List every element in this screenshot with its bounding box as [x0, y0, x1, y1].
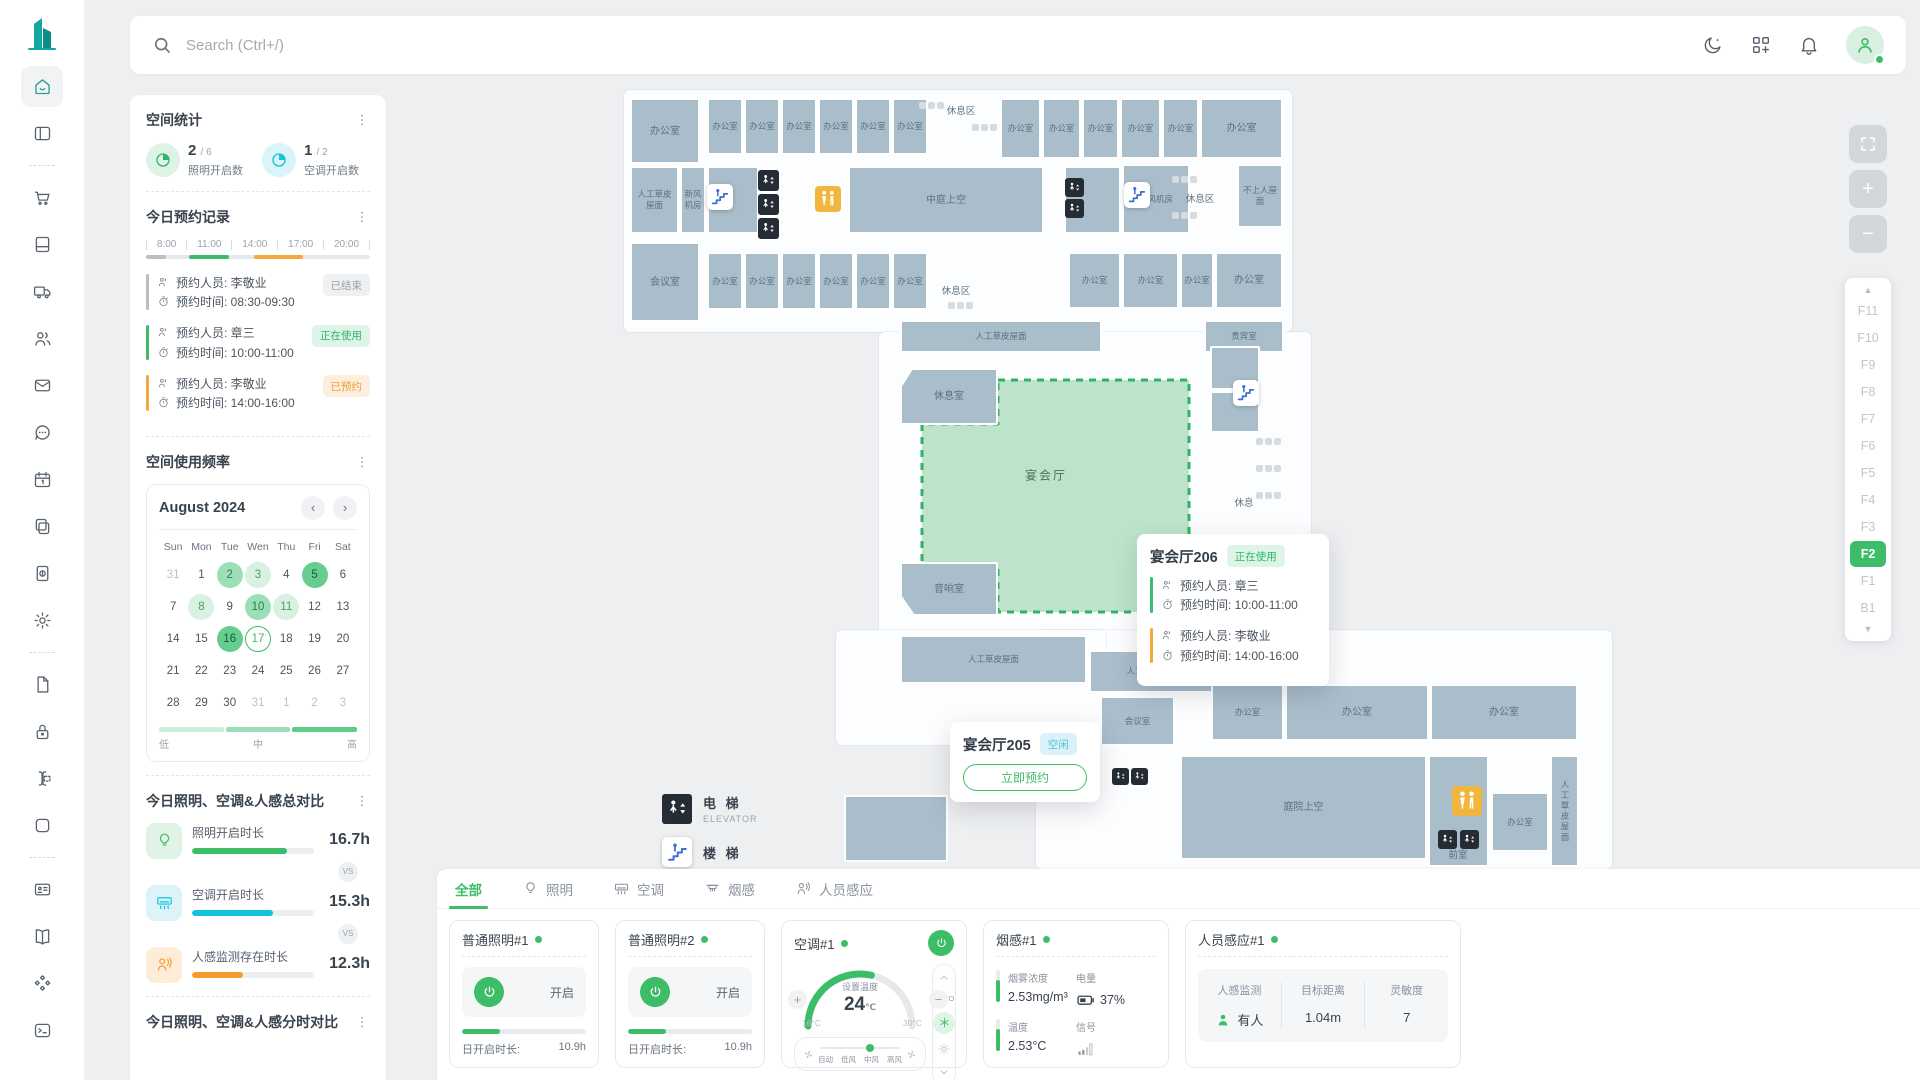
sidebar-item-chat[interactable] [21, 412, 63, 453]
online-status-dot [1874, 54, 1885, 65]
signal-icon [1076, 1039, 1096, 1059]
metric-value: 2.53°C [1008, 1039, 1046, 1053]
room-办公室[interactable]: 办公室 [1082, 98, 1119, 159]
time-text: 预约时间: 14:00-16:00 [1180, 647, 1299, 664]
dark-mode-icon[interactable] [1702, 34, 1724, 56]
elevator-icon [1112, 768, 1129, 785]
calendar-day[interactable]: 29 [187, 689, 215, 718]
legend-low: 低 [159, 736, 169, 751]
chat-icon [32, 422, 53, 443]
fan-speed-slider[interactable]: 自动低风中风高风 [794, 1037, 926, 1071]
room-办公室[interactable]: 办公室 [781, 98, 817, 155]
tooltip-room-name: 宴会厅205 [963, 734, 1031, 755]
metric-value: 2.53mg/m³ [1008, 990, 1068, 1004]
ac-icon [146, 885, 182, 921]
compare-value: 12.3h [324, 947, 370, 973]
tab-label: 照明 [546, 879, 573, 899]
calendar-day[interactable]: 2 [216, 561, 244, 590]
floor-button-F7[interactable]: F7 [1850, 406, 1886, 432]
chevron-down-icon[interactable] [937, 1065, 951, 1079]
tab-label: 全部 [455, 879, 482, 899]
room-办公室[interactable]: 办公室 [781, 252, 817, 310]
room-庭院上空[interactable]: 庭院上空 [1180, 755, 1427, 860]
room-办公室[interactable]: 办公室 [1122, 252, 1179, 309]
furn-icon [1256, 492, 1281, 499]
person-icon [157, 326, 170, 339]
search-icon [152, 35, 172, 55]
tab-label: 烟感 [728, 879, 755, 899]
device-title: 普通照明#1 [462, 930, 528, 949]
section-hourly-compare: 今日照明、空调&人感分时对比 [146, 997, 370, 1045]
room-办公室[interactable]: 办公室 [630, 98, 700, 164]
sidebar-item-receipt[interactable] [21, 553, 63, 594]
metric-label: 灵敏度 [1365, 982, 1448, 998]
ac-mode-selector: AUTO [932, 964, 956, 1080]
room-人工草皮屋面[interactable]: 人工草皮屋面 [1550, 755, 1579, 867]
calendar-day[interactable]: 23 [216, 657, 244, 686]
furn-icon [1256, 438, 1281, 445]
tab-label: 空调 [637, 879, 664, 899]
duration-bar [462, 1029, 586, 1034]
duration-bar [628, 1029, 752, 1034]
zoom-out-button[interactable]: − [1849, 215, 1887, 253]
search-input[interactable] [186, 37, 606, 54]
weekday-label: Sun [159, 538, 187, 558]
calendar-day[interactable]: 11 [272, 593, 300, 622]
stat-label: 空调开启数 [304, 162, 359, 178]
calendar-day[interactable]: 28 [159, 689, 187, 718]
room-会议室[interactable]: 会议室 [1100, 696, 1175, 746]
stat-value: 2 / 6 [188, 142, 212, 159]
room-办公室[interactable]: 办公室 [1000, 98, 1041, 159]
weekday-label: Wen [244, 538, 272, 558]
duration-label: 日开启时长: [462, 1041, 520, 1057]
map-label: 休息区 [947, 103, 976, 117]
ac-icon [613, 880, 630, 897]
reservation-record: 预约人员: 李敬业 预约时间: 08:30-09:30 已结束 [146, 271, 370, 313]
battery-icon [1076, 990, 1096, 1010]
calendar-day[interactable]: 18 [272, 625, 300, 654]
room-办公室[interactable]: 办公室 [1491, 792, 1549, 852]
room-办公室[interactable]: 办公室 [855, 98, 891, 155]
compare-row: 空调开启时长 15.3h [146, 885, 370, 921]
level-gauge [996, 970, 1000, 1002]
room-办公室[interactable]: 办公室 [1430, 684, 1578, 741]
calendar-day[interactable]: 3 [329, 689, 357, 718]
calendar-day[interactable]: 20 [329, 625, 357, 654]
floor-button-F5[interactable]: F5 [1850, 460, 1886, 486]
calendar-day[interactable]: 21 [159, 657, 187, 686]
legend-zh: 电 梯 [703, 793, 758, 812]
sidebar-item-mail[interactable] [21, 365, 63, 406]
room-中庭上空[interactable]: 中庭上空 [848, 166, 1044, 234]
duration-label: 日开启时长: [628, 1041, 686, 1057]
temp-max: 30°C [903, 1018, 922, 1028]
reservation-record: 预约人员: 章三 预约时间: 10:00-11:00 正在使用 [146, 322, 370, 364]
tab-label: 人员感应 [819, 879, 873, 899]
calendar-day[interactable]: 13 [329, 593, 357, 622]
room-办公室[interactable]: 办公室 [707, 252, 743, 310]
fullscreen-button[interactable] [1849, 125, 1887, 163]
room-办公室[interactable]: 办公室 [1211, 684, 1284, 741]
layout-icon [32, 123, 53, 144]
calendar-day[interactable]: 9 [216, 593, 244, 622]
device-card-ac: 空调#1 + − 16°C 30°C [781, 920, 967, 1068]
cool-mode-icon[interactable] [933, 1012, 955, 1034]
section-daily-compare: 今日照明、空调&人感总对比 照明开启时长 16.7hVS 空调开启时长 15.3… [146, 776, 370, 997]
room-人工草皮屋面[interactable]: 人工草皮屋面 [630, 166, 679, 234]
left-info-panel: 空间统计 2 / 6 照明开启数 1 / 2 空调开启数 今日预约记录 8:00… [130, 95, 386, 1080]
presence-icon [146, 947, 182, 983]
floor-button-F9[interactable]: F9 [1850, 352, 1886, 378]
device-title: 普通照明#2 [628, 930, 694, 949]
elevator-icon [758, 218, 779, 239]
reservation-record: 预约人员: 李敬业 预约时间: 14:00-16:00 已预约 [146, 372, 370, 414]
device-title: 烟感#1 [996, 930, 1036, 949]
fan-slider-handle[interactable] [866, 1044, 874, 1052]
timeline-tick: 20:00 [334, 239, 359, 250]
weekday-label: Sat [329, 538, 357, 558]
room[interactable] [844, 795, 948, 862]
heat-mode-icon[interactable] [937, 1042, 951, 1056]
person-icon [1161, 579, 1174, 592]
usage-calendar: August 2024 ‹ › SunMonTueWenThuFriSat311… [146, 484, 370, 762]
device-card-light-1: 普通照明#1 开启 日开启时长: 10.9h [449, 920, 599, 1068]
fan-speed-label[interactable]: 低风 [841, 1054, 856, 1065]
time-text: 预约时间: 08:30-09:30 [176, 293, 295, 310]
floor-button-F6[interactable]: F6 [1850, 433, 1886, 459]
metric-value: 有人 [1237, 1010, 1263, 1029]
elevator-icon [1131, 768, 1148, 785]
floor-button-F8[interactable]: F8 [1850, 379, 1886, 405]
floor-button-F10[interactable]: F10 [1850, 325, 1886, 351]
legend-item: 电 梯ELEVATOR [662, 793, 758, 824]
calendar-day[interactable]: 5 [300, 561, 328, 590]
zoom-in-button[interactable]: + [1849, 170, 1887, 208]
fan-speed-label[interactable]: 高风 [887, 1054, 902, 1065]
calendar-day[interactable]: 15 [187, 625, 215, 654]
reservation-timeline-track [146, 255, 370, 259]
room-人工草皮屋面[interactable]: 人工草皮屋面 [900, 635, 1087, 684]
icon-sidebar [0, 0, 84, 1080]
sidebar-item-truck[interactable] [21, 271, 63, 312]
clock-pie-icon [262, 143, 296, 177]
truck-icon [32, 281, 53, 302]
tab-烟感[interactable]: 烟感 [704, 869, 755, 908]
metric-label: 人感监测 [1198, 982, 1281, 998]
room-tooltip-205: 宴会厅205 空闲 立即预约 [950, 722, 1100, 802]
furn-icon [1172, 176, 1197, 183]
top-search-bar [130, 16, 1906, 74]
section-space-stats: 空间统计 2 / 6 照明开启数 1 / 2 空调开启数 [146, 95, 370, 192]
sidebar-item-lock[interactable] [21, 711, 63, 752]
ac-power-button[interactable] [928, 930, 954, 956]
calendar-day[interactable]: 25 [272, 657, 300, 686]
cart-icon [32, 187, 53, 208]
sidebar-item-shapes[interactable] [21, 963, 63, 1004]
room-办公室[interactable]: 办公室 [855, 252, 891, 310]
avatar[interactable] [1846, 26, 1884, 64]
calendar-day[interactable]: 12 [300, 593, 328, 622]
floor-selector: ▲F11F10F9F8F7F6F5F4F3F2F1B1▼ [1845, 278, 1891, 641]
temperature-gauge: + − 16°C 30°C 设置温度 24℃ [794, 964, 926, 1030]
metric-label: 信号 [1076, 1019, 1096, 1034]
metric-value: 7 [1365, 1010, 1448, 1025]
calendar-day[interactable]: 27 [329, 657, 357, 686]
calendar-day[interactable]: 1 [272, 689, 300, 718]
power-state: 开启 [716, 984, 740, 1001]
kebab-menu-icon[interactable] [354, 209, 370, 225]
tab-人员感应[interactable]: 人员感应 [795, 869, 873, 908]
elevator-icon [1460, 830, 1479, 849]
elevator-icon [662, 794, 692, 824]
kebab-menu-icon[interactable] [354, 112, 370, 128]
calendar-day[interactable]: 31 [244, 689, 272, 718]
person-text: 预约人员: 章三 [176, 324, 255, 341]
book-icon [32, 234, 53, 255]
compare-value: 16.7h [324, 823, 370, 849]
power-button[interactable] [474, 977, 504, 1007]
calendar-month: August 2024 [159, 500, 245, 516]
sidebar-item-file[interactable] [21, 664, 63, 705]
smoke-icon [704, 880, 721, 897]
tab-空调[interactable]: 空调 [613, 869, 664, 908]
device-title: 人员感应#1 [1198, 930, 1264, 949]
stat-item: 2 / 6 照明开启数 [146, 142, 254, 178]
calendar-day[interactable]: 4 [272, 561, 300, 590]
clock-icon [1161, 598, 1174, 611]
calendar-icon [32, 469, 53, 490]
floor-button-B1[interactable]: B1 [1850, 595, 1886, 621]
apps-grid-icon[interactable] [1750, 34, 1772, 56]
device-card-light-2: 普通照明#2 开启 日开启时长: 10.9h [615, 920, 765, 1068]
timeline-tick: 14:00 [242, 239, 267, 250]
calendar-day[interactable]: 2 [300, 689, 328, 718]
room-办公室[interactable]: 办公室 [1285, 684, 1429, 741]
clock-icon [1161, 649, 1174, 662]
room-办公室[interactable]: 办公室 [744, 252, 780, 310]
chevron-up-icon[interactable] [937, 971, 951, 985]
sidebar-item-cart[interactable] [21, 177, 63, 218]
floor-button-F4[interactable]: F4 [1850, 487, 1886, 513]
map-legend: 电 梯ELEVATOR 楼 梯 [662, 793, 758, 880]
room-办公室[interactable]: 办公室 [1042, 98, 1081, 159]
vs-badge: VS [338, 862, 358, 882]
temp-value: 24 [844, 994, 865, 1015]
room-人工草皮屋面[interactable]: 人工草皮屋面 [900, 320, 1102, 353]
kebab-menu-icon[interactable] [354, 1014, 370, 1030]
sidebar-item-home[interactable] [21, 66, 63, 107]
sidebar-divider [29, 857, 55, 858]
cursor-icon [32, 768, 53, 789]
copy-icon [32, 516, 53, 537]
status-badge: 正在使用 [1227, 545, 1285, 567]
room-不上人屋面[interactable]: 不上人屋面 [1237, 164, 1283, 228]
floor-button-F11[interactable]: F11 [1850, 298, 1886, 324]
sidebar-item-gear[interactable] [21, 600, 63, 641]
presence-icon [795, 880, 812, 897]
calendar-day[interactable]: 31 [159, 561, 187, 590]
compare-row: 人感监测存在时长 12.3h [146, 947, 370, 983]
person-icon [1215, 1012, 1231, 1028]
legend-mid: 中 [253, 736, 263, 751]
sidebar-item-bookopen[interactable] [21, 916, 63, 957]
room-办公室[interactable]: 办公室 [818, 98, 854, 155]
stairs-icon [707, 184, 733, 210]
metric-label: 目标距离 [1282, 982, 1365, 998]
app-logo [22, 12, 62, 56]
person-icon [157, 377, 170, 390]
room-会议室[interactable]: 会议室 [630, 242, 700, 322]
metric-value: 1.04m [1282, 1010, 1365, 1025]
calendar-day[interactable]: 26 [300, 657, 328, 686]
stairs-icon [1233, 380, 1259, 406]
section-title: 空间使用频率 [146, 452, 230, 472]
person-text: 预约人员: 李敬业 [176, 274, 267, 291]
tab-全部[interactable]: 全部 [455, 869, 482, 908]
sidebar-item-terminal[interactable] [21, 1010, 63, 1051]
sidebar-item-book[interactable] [21, 224, 63, 265]
legend-zh: 楼 梯 [703, 843, 742, 862]
tab-照明[interactable]: 照明 [522, 869, 573, 908]
weekday-label: Tue [216, 538, 244, 558]
elevator-icon [1065, 178, 1084, 197]
calendar-day[interactable]: 1 [187, 561, 215, 590]
kebab-menu-icon[interactable] [354, 454, 370, 470]
legend-en: ELEVATOR [703, 814, 758, 824]
kebab-menu-icon[interactable] [354, 793, 370, 809]
lock-icon [32, 721, 53, 742]
compare-row: 照明开启时长 16.7h [146, 823, 370, 859]
sidebar-item-calendar[interactable] [21, 459, 63, 500]
person-icon [1161, 629, 1174, 642]
gauge-label: 设置温度 [794, 980, 926, 993]
online-dot [1271, 936, 1278, 943]
compare-label: 照明开启时长 [192, 824, 314, 841]
file-icon [32, 674, 53, 695]
room-办公室[interactable]: 办公室 [1162, 98, 1199, 159]
sidebar-item-square[interactable] [21, 805, 63, 846]
person-text: 预约人员: 李敬业 [1180, 627, 1271, 644]
calendar-day[interactable]: 6 [329, 561, 357, 590]
power-button[interactable] [640, 977, 670, 1007]
calendar-next-button[interactable]: › [333, 496, 357, 520]
room-办公室[interactable]: 办公室 [1215, 252, 1283, 309]
device-card-smoke: 烟感#1 烟雾浓度 2.53mg/m³ 电量 37% 温度 2.53°C 信号 [983, 920, 1169, 1068]
floor-button-F1[interactable]: F1 [1850, 568, 1886, 594]
stat-item: 1 / 2 空调开启数 [262, 142, 370, 178]
calendar-day[interactable]: 24 [244, 657, 272, 686]
sidebar-item-users[interactable] [21, 318, 63, 359]
online-dot [701, 936, 708, 943]
online-dot [1043, 936, 1050, 943]
book-now-button[interactable]: 立即预约 [963, 764, 1087, 791]
room-办公室[interactable]: 办公室 [1180, 252, 1214, 309]
sidebar-divider [29, 165, 55, 166]
bell-icon[interactable] [1798, 34, 1820, 56]
section-title: 今日预约记录 [146, 207, 230, 227]
metric-label: 电量 [1076, 970, 1125, 985]
calendar-day[interactable]: 14 [159, 625, 187, 654]
sidebar-item-layout[interactable] [21, 113, 63, 154]
calendar-day[interactable]: 10 [244, 593, 272, 622]
room-办公室[interactable]: 办公室 [1120, 98, 1161, 159]
furn-icon [1172, 212, 1197, 219]
compare-label: 人感监测存在时长 [192, 948, 314, 965]
floor-button-F2[interactable]: F2 [1850, 541, 1886, 567]
map-label: 休息区 [1186, 191, 1215, 205]
time-text: 预约时间: 14:00-16:00 [176, 394, 295, 411]
sidebar-divider [29, 652, 55, 653]
status-badge: 空闲 [1040, 733, 1077, 755]
receipt-icon [32, 563, 53, 584]
calendar-prev-button[interactable]: ‹ [301, 496, 325, 520]
room-办公室[interactable]: 办公室 [707, 98, 743, 155]
calendar-day[interactable]: 8 [187, 593, 215, 622]
temp-unit: ℃ [865, 1002, 876, 1012]
online-dot [535, 936, 542, 943]
elevator-icon [758, 194, 779, 215]
room-办公室[interactable]: 办公室 [818, 252, 854, 310]
temp-min: 16°C [802, 1018, 821, 1028]
sidebar-item-copy[interactable] [21, 506, 63, 547]
section-title: 今日照明、空调&人感总对比 [146, 791, 324, 811]
duration-value: 10.9h [558, 1041, 586, 1057]
metric-label: 烟雾浓度 [1008, 970, 1068, 985]
square-icon [32, 815, 53, 836]
stairs-icon [1124, 182, 1150, 208]
furn-icon [1256, 465, 1281, 472]
idcard-icon [32, 879, 53, 900]
timeline-tick: 11:00 [197, 239, 221, 250]
calendar-day[interactable]: 22 [187, 657, 215, 686]
room-办公室[interactable]: 办公室 [1068, 252, 1121, 309]
calendar-day[interactable]: 7 [159, 593, 187, 622]
room-休息室[interactable]: 休息室 [900, 368, 998, 425]
temp-decrease-button[interactable]: − [929, 990, 948, 1009]
floor-button-F3[interactable]: F3 [1850, 514, 1886, 540]
clock-icon [157, 346, 170, 359]
calendar-day[interactable]: 19 [300, 625, 328, 654]
calendar-day[interactable]: 30 [216, 689, 244, 718]
online-dot [841, 940, 848, 947]
furn-icon [919, 102, 944, 109]
calendar-day[interactable]: 16 [216, 625, 244, 654]
floors-scroll-down[interactable]: ▼ [1862, 622, 1875, 636]
duration-value: 10.9h [724, 1041, 752, 1057]
room-新风机房[interactable]: 新风机房 [680, 166, 706, 234]
sidebar-item-cursor[interactable] [21, 758, 63, 799]
device-panel: 全部照明空调烟感人员感应 普通照明#1 开启 日开启时长: 10.9h 普通照明… [437, 869, 1920, 1080]
shapes-icon [32, 973, 53, 994]
room-办公室[interactable]: 办公室 [892, 252, 928, 310]
time-text: 预约时间: 10:00-11:00 [1180, 596, 1298, 613]
furn-icon [948, 302, 973, 309]
calendar-day[interactable]: 17 [244, 625, 272, 654]
room-办公室[interactable]: 办公室 [1200, 98, 1283, 159]
calendar-day[interactable]: 3 [244, 561, 272, 590]
fan-speed-label[interactable]: 中风 [864, 1054, 879, 1065]
section-reservations: 今日预约记录 8:0011:0014:0017:0020:00 预约人员: 李敬… [146, 192, 370, 437]
terminal-icon [32, 1020, 53, 1041]
floors-scroll-up[interactable]: ▲ [1862, 283, 1875, 297]
sidebar-item-idcard[interactable] [21, 869, 63, 910]
fan-speed-label[interactable]: 自动 [818, 1054, 833, 1065]
tooltip-room-name: 宴会厅206 [1150, 546, 1218, 567]
compare-label: 空调开启时长 [192, 886, 314, 903]
room-音响室[interactable]: 音响室 [900, 562, 998, 616]
room-办公室[interactable]: 办公室 [744, 98, 780, 155]
